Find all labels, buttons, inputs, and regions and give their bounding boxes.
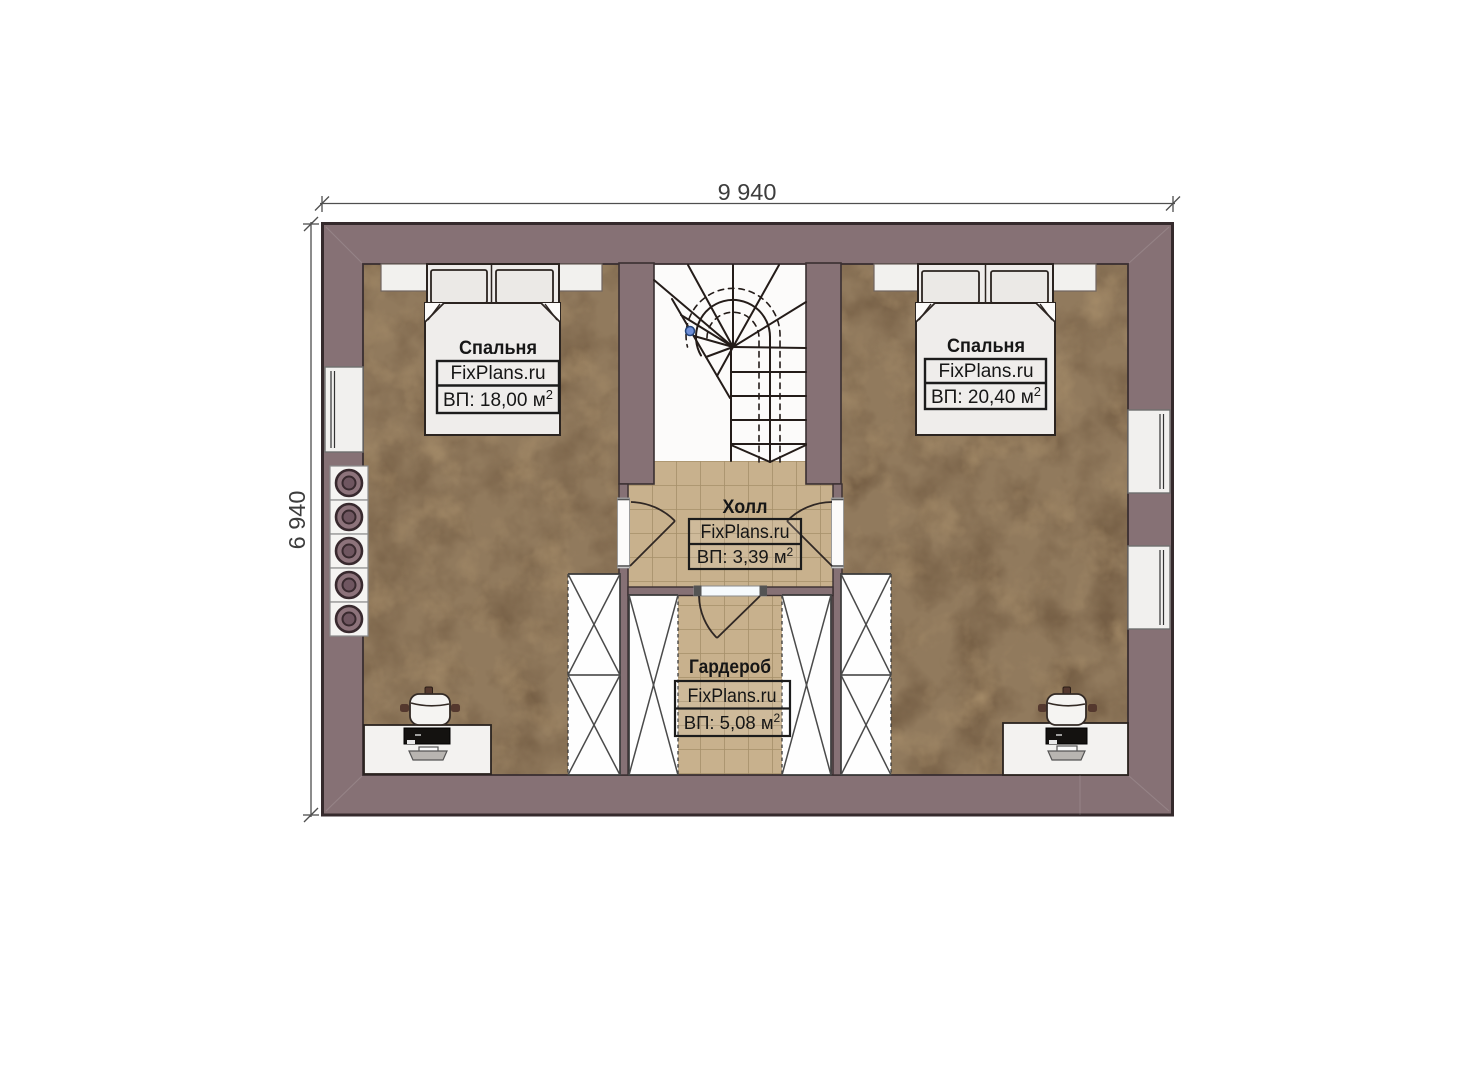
svg-text:Спальня: Спальня <box>459 337 537 359</box>
svg-text:FixPlans.ru: FixPlans.ru <box>688 686 777 707</box>
svg-text:6 940: 6 940 <box>284 491 310 550</box>
svg-text:9 940: 9 940 <box>718 179 777 205</box>
svg-text:FixPlans.ru: FixPlans.ru <box>938 361 1033 382</box>
svg-text:ВП: 20,40 м2: ВП: 20,40 м2 <box>931 384 1041 408</box>
svg-text:Гардероб: Гардероб <box>689 656 771 678</box>
svg-text:FixPlans.ru: FixPlans.ru <box>701 522 790 543</box>
svg-text:ВП: 5,08 м2: ВП: 5,08 м2 <box>684 711 781 733</box>
svg-text:Спальня: Спальня <box>947 335 1025 357</box>
svg-text:ВП: 3,39 м2: ВП: 3,39 м2 <box>697 545 794 567</box>
svg-text:ВП: 18,00 м2: ВП: 18,00 м2 <box>443 387 553 411</box>
svg-text:FixPlans.ru: FixPlans.ru <box>450 363 545 384</box>
svg-text:Холл: Холл <box>723 496 768 518</box>
